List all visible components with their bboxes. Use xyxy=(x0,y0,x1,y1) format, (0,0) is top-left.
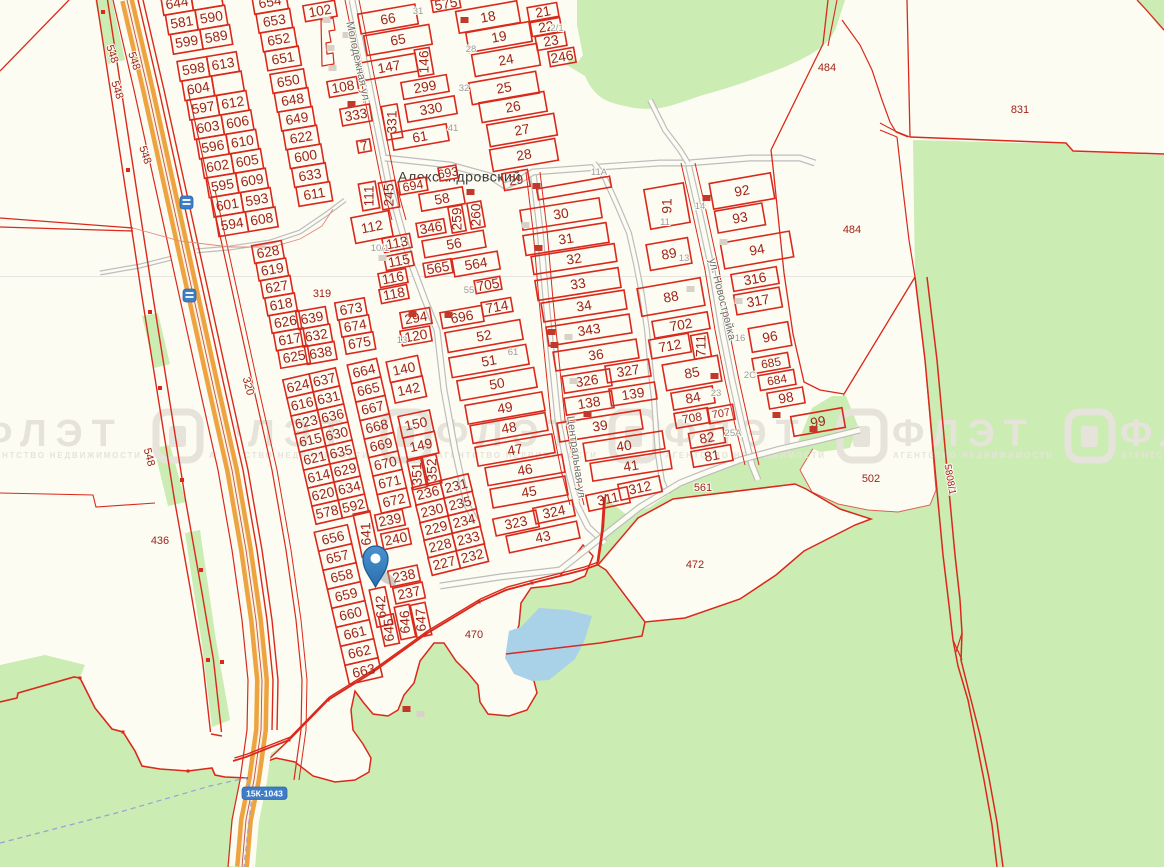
svg-text:28: 28 xyxy=(515,146,533,163)
svg-text:55: 55 xyxy=(464,285,475,296)
svg-text:32: 32 xyxy=(565,250,583,267)
svg-text:319: 319 xyxy=(313,288,331,300)
svg-text:96: 96 xyxy=(761,328,779,345)
svg-text:15К-1043: 15К-1043 xyxy=(246,788,283,798)
svg-text:81: 81 xyxy=(703,447,721,464)
svg-text:40: 40 xyxy=(615,437,633,454)
svg-text:23: 23 xyxy=(542,32,560,49)
svg-text:26: 26 xyxy=(504,98,522,115)
svg-text:45: 45 xyxy=(520,483,538,500)
svg-text:13: 13 xyxy=(679,253,690,264)
svg-text:19: 19 xyxy=(490,28,508,45)
svg-text:66: 66 xyxy=(379,10,397,27)
svg-text:470: 470 xyxy=(465,629,483,641)
svg-text:2С: 2С xyxy=(744,370,756,381)
svg-text:32: 32 xyxy=(459,83,470,94)
svg-text:84: 84 xyxy=(684,389,702,406)
svg-text:351: 351 xyxy=(409,462,425,486)
svg-text:58: 58 xyxy=(433,190,451,207)
svg-text:33: 33 xyxy=(569,275,587,292)
svg-text:11А: 11А xyxy=(591,167,608,178)
svg-text:352: 352 xyxy=(424,458,440,482)
svg-text:645: 645 xyxy=(381,618,397,642)
svg-text:14: 14 xyxy=(695,201,706,212)
svg-text:10/1: 10/1 xyxy=(371,243,390,254)
svg-text:85: 85 xyxy=(683,364,701,381)
svg-text:647: 647 xyxy=(413,608,429,632)
svg-text:31: 31 xyxy=(557,230,575,247)
svg-text:92: 92 xyxy=(733,182,751,199)
svg-text:39: 39 xyxy=(591,417,609,434)
svg-text:89: 89 xyxy=(660,245,678,262)
svg-text:502: 502 xyxy=(862,473,880,485)
svg-text:51: 51 xyxy=(480,352,498,369)
svg-text:93: 93 xyxy=(731,209,749,226)
svg-text:48: 48 xyxy=(500,419,518,436)
svg-text:2/1: 2/1 xyxy=(550,23,563,34)
svg-text:711: 711 xyxy=(694,335,709,357)
svg-text:484: 484 xyxy=(818,62,836,74)
svg-text:88: 88 xyxy=(662,288,680,305)
svg-text:831: 831 xyxy=(1011,104,1029,116)
svg-text:18: 18 xyxy=(479,8,497,25)
svg-text:245: 245 xyxy=(382,183,397,206)
svg-text:41: 41 xyxy=(622,457,640,474)
svg-text:41: 41 xyxy=(448,123,459,134)
svg-text:50: 50 xyxy=(488,375,506,392)
svg-text:146: 146 xyxy=(417,50,432,73)
svg-text:ФЛЭТ: ФЛЭТ xyxy=(1120,413,1164,455)
svg-text:98: 98 xyxy=(777,389,795,406)
svg-text:31: 31 xyxy=(413,6,424,17)
svg-text:82: 82 xyxy=(698,429,716,446)
svg-text:30: 30 xyxy=(552,205,570,222)
svg-text:АГЕНТСТВО НЕДВИЖИМОСТИ: АГЕНТСТВО НЕДВИЖИМОСТИ xyxy=(893,451,1054,460)
svg-text:331: 331 xyxy=(385,110,400,133)
svg-text:47: 47 xyxy=(506,441,524,458)
svg-text:56: 56 xyxy=(445,235,463,252)
svg-text:11: 11 xyxy=(660,217,670,228)
svg-text:34: 34 xyxy=(575,297,593,314)
svg-text:АГЕНТСТВО НЕДВИЖИМОСТИ: АГЕНТСТВО НЕДВИЖИМОСТИ xyxy=(0,451,142,460)
svg-text:ФЛЭТ: ФЛЭТ xyxy=(892,413,1036,455)
svg-text:25А: 25А xyxy=(725,428,743,439)
svg-text:260: 260 xyxy=(469,203,484,226)
svg-text:94: 94 xyxy=(748,241,766,258)
svg-text:646: 646 xyxy=(397,610,413,634)
svg-text:259: 259 xyxy=(450,207,465,230)
svg-text:13: 13 xyxy=(397,335,408,346)
svg-text:46: 46 xyxy=(516,461,534,478)
svg-text:ФЛЭТ: ФЛЭТ xyxy=(0,413,124,455)
svg-text:25: 25 xyxy=(495,79,513,96)
svg-text:641: 641 xyxy=(358,522,374,546)
svg-text:49: 49 xyxy=(496,399,514,416)
svg-text:52: 52 xyxy=(475,327,493,344)
svg-text:29: 29 xyxy=(508,171,525,188)
svg-text:61: 61 xyxy=(508,347,519,358)
svg-text:91: 91 xyxy=(660,198,675,213)
svg-text:АГЕНТСТВО НЕДВИЖИМОСТИ: АГЕНТСТВО НЕДВИЖИМОСТИ xyxy=(1121,451,1164,460)
svg-text:23: 23 xyxy=(711,388,722,399)
svg-text:24: 24 xyxy=(497,51,515,68)
svg-text:61: 61 xyxy=(411,128,429,145)
svg-text:65: 65 xyxy=(389,31,407,48)
svg-text:484: 484 xyxy=(843,224,861,236)
svg-text:28: 28 xyxy=(466,44,477,55)
svg-text:36: 36 xyxy=(587,346,605,363)
svg-text:27: 27 xyxy=(513,121,531,138)
svg-text:561: 561 xyxy=(694,482,712,494)
svg-text:436: 436 xyxy=(151,535,169,547)
svg-text:472: 472 xyxy=(686,559,704,571)
svg-text:111: 111 xyxy=(362,186,377,207)
